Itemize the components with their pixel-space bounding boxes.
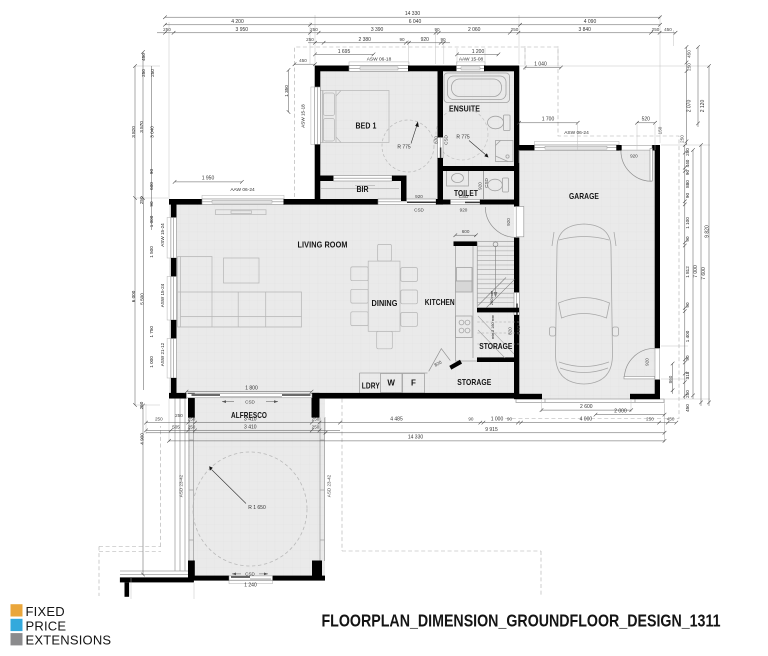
svg-text:R 775: R 775 (397, 144, 411, 150)
svg-text:ASW 06-24: ASW 06-24 (564, 130, 589, 136)
svg-text:250: 250 (141, 69, 146, 77)
svg-text:250: 250 (652, 27, 660, 32)
svg-text:LIVING ROOM: LIVING ROOM (298, 240, 348, 250)
svg-text:1 800: 1 800 (245, 386, 258, 392)
svg-text:90: 90 (685, 170, 690, 176)
svg-text:14 330: 14 330 (405, 11, 421, 17)
svg-text:PRICE: PRICE (26, 618, 67, 633)
svg-text:90: 90 (149, 201, 154, 207)
svg-text:250: 250 (175, 413, 183, 418)
svg-text:GARAGE: GARAGE (569, 191, 599, 201)
svg-text:450: 450 (687, 50, 692, 58)
svg-text:9 820: 9 820 (705, 225, 711, 238)
svg-text:250: 250 (685, 390, 690, 398)
svg-text:920: 920 (421, 37, 430, 43)
svg-text:600: 600 (149, 182, 154, 190)
svg-text:1 950: 1 950 (202, 176, 215, 182)
svg-text:2 380: 2 380 (358, 37, 371, 43)
svg-text:520: 520 (642, 117, 651, 123)
svg-text:1 400: 1 400 (685, 330, 690, 342)
svg-text:4 200: 4 200 (231, 19, 244, 25)
svg-text:880: 880 (685, 180, 690, 188)
svg-text:6 000: 6 000 (131, 290, 136, 302)
svg-text:6 040: 6 040 (409, 19, 422, 25)
svg-text:2 120: 2 120 (700, 100, 706, 113)
svg-text:600: 600 (462, 229, 470, 234)
svg-text:2 000: 2 000 (614, 409, 627, 415)
svg-text:FIXED: FIXED (26, 604, 65, 619)
svg-text:250: 250 (139, 196, 144, 204)
svg-text:2 060: 2 060 (468, 27, 481, 33)
svg-text:250: 250 (188, 417, 196, 422)
svg-text:ALFRESCO: ALFRESCO (231, 410, 267, 420)
svg-text:ASW 15-18: ASW 15-18 (301, 104, 306, 128)
svg-text:250: 250 (163, 27, 171, 32)
svg-text:250: 250 (511, 27, 519, 32)
svg-text:440: 440 (685, 159, 690, 167)
svg-text:R 1 650: R 1 650 (248, 505, 266, 511)
svg-text:920: 920 (645, 358, 650, 366)
svg-text:4 000: 4 000 (580, 417, 593, 423)
svg-text:250: 250 (680, 135, 685, 143)
svg-text:920: 920 (630, 154, 638, 159)
svg-text:9 915: 9 915 (485, 427, 498, 433)
svg-text:90: 90 (440, 37, 446, 42)
svg-text:ASD 23-42: ASD 23-42 (327, 474, 332, 497)
svg-text:250: 250 (312, 424, 320, 429)
svg-text:4 900: 4 900 (140, 433, 145, 445)
svg-text:DINING: DINING (372, 298, 398, 308)
svg-text:ASW 06-18: ASW 06-18 (367, 57, 392, 63)
svg-text:318: 318 (685, 371, 690, 379)
svg-text:EXTENSIONS: EXTENSIONS (26, 633, 112, 648)
svg-text:1 812: 1 812 (685, 266, 690, 278)
svg-text:920: 920 (415, 194, 423, 199)
svg-text:7 600: 7 600 (701, 267, 707, 280)
svg-text:250: 250 (312, 417, 320, 422)
svg-text:250: 250 (687, 63, 692, 71)
svg-text:3 950: 3 950 (236, 27, 249, 33)
svg-text:1 200: 1 200 (472, 49, 485, 55)
svg-text:TOILET: TOILET (454, 188, 479, 198)
svg-text:450: 450 (141, 53, 146, 61)
svg-text:3 390: 3 390 (371, 27, 384, 33)
svg-text:250: 250 (685, 148, 690, 156)
svg-text:KITCHEN: KITCHEN (425, 297, 455, 307)
svg-text:250: 250 (310, 27, 318, 32)
svg-text:CSD: CSD (245, 399, 255, 404)
svg-text:450: 450 (299, 58, 307, 63)
svg-text:450: 450 (667, 417, 675, 422)
svg-text:1 000: 1 000 (491, 417, 504, 423)
svg-text:90: 90 (685, 355, 690, 361)
svg-text:90: 90 (685, 193, 690, 199)
svg-text:1 500: 1 500 (149, 246, 154, 258)
svg-text:250: 250 (155, 417, 163, 422)
svg-text:CSD: CSD (443, 134, 448, 144)
svg-text:LDRY: LDRY (362, 381, 380, 391)
svg-text:ASW 21-12: ASW 21-12 (160, 342, 165, 366)
svg-text:250: 250 (139, 401, 144, 409)
svg-text:870: 870 (434, 136, 439, 144)
svg-text:860: 860 (668, 375, 673, 383)
svg-text:4 485: 4 485 (390, 417, 403, 423)
svg-text:2 070: 2 070 (687, 100, 693, 113)
svg-text:F: F (411, 378, 416, 387)
svg-text:1 000: 1 000 (149, 356, 154, 368)
svg-text:min 2 160 mm: min 2 160 mm (491, 315, 495, 339)
svg-text:450: 450 (664, 27, 672, 32)
svg-text:450: 450 (685, 404, 690, 412)
svg-text:1 695: 1 695 (338, 49, 351, 55)
svg-text:250: 250 (646, 417, 654, 422)
svg-text:5 500: 5 500 (140, 293, 145, 305)
svg-text:ASD 23-42: ASD 23-42 (179, 474, 184, 497)
svg-text:250: 250 (188, 424, 196, 429)
svg-text:3 840: 3 840 (578, 27, 591, 33)
svg-text:BIR: BIR (357, 185, 369, 194)
svg-text:90: 90 (399, 37, 405, 42)
svg-text:820: 820 (508, 327, 513, 335)
svg-text:ASW 15-24: ASW 15-24 (160, 283, 165, 307)
svg-text:CSD: CSD (516, 324, 521, 334)
svg-text:920: 920 (506, 218, 511, 226)
svg-text:1 040: 1 040 (534, 61, 547, 67)
svg-text:1 750: 1 750 (149, 326, 154, 338)
svg-text:3 570: 3 570 (139, 121, 144, 133)
svg-text:250: 250 (306, 37, 314, 42)
svg-text:AAW 15-08: AAW 15-08 (459, 57, 484, 63)
svg-text:920: 920 (460, 207, 468, 212)
svg-text:CSD: CSD (414, 207, 424, 212)
svg-text:14 330: 14 330 (408, 435, 424, 441)
svg-text:2 600: 2 600 (580, 404, 593, 410)
svg-text:4 090: 4 090 (584, 19, 597, 25)
svg-text:BED 1: BED 1 (356, 121, 377, 131)
svg-text:ENSUITE: ENSUITE (449, 103, 480, 113)
svg-text:90: 90 (434, 27, 440, 32)
svg-text:90: 90 (507, 417, 513, 422)
svg-text:1 700: 1 700 (542, 117, 555, 123)
svg-text:CSD: CSD (245, 571, 255, 576)
svg-text:505: 505 (172, 424, 180, 429)
svg-text:STORAGE: STORAGE (479, 342, 513, 351)
svg-text:ASW 15-24: ASW 15-24 (160, 223, 165, 247)
svg-text:1 000: 1 000 (149, 215, 154, 227)
svg-text:90: 90 (468, 417, 474, 422)
svg-text:3 820: 3 820 (131, 126, 136, 138)
svg-text:STORAGE: STORAGE (457, 377, 491, 387)
svg-text:260 mm: 260 mm (489, 290, 494, 305)
svg-text:FLOORPLAN_DIMENSION_GROUNDFLOO: FLOORPLAN_DIMENSION_GROUNDFLOOR_DESIGN_1… (322, 611, 721, 631)
svg-text:1 100: 1 100 (685, 217, 690, 229)
svg-text:7 000: 7 000 (693, 265, 699, 278)
svg-text:R 775: R 775 (456, 134, 470, 140)
svg-text:1 240: 1 240 (244, 582, 257, 588)
svg-text:CSD: CSD (484, 177, 489, 187)
svg-text:90: 90 (685, 302, 690, 308)
svg-text:3 410: 3 410 (244, 424, 257, 430)
svg-text:90: 90 (685, 236, 690, 242)
svg-text:3 040: 3 040 (150, 126, 155, 138)
svg-text:AAW 06-24: AAW 06-24 (230, 187, 255, 193)
svg-text:150: 150 (658, 126, 663, 134)
svg-text:920: 920 (478, 182, 483, 190)
svg-text:90: 90 (149, 169, 154, 175)
svg-text:250: 250 (150, 69, 155, 77)
svg-text:W: W (387, 378, 395, 387)
